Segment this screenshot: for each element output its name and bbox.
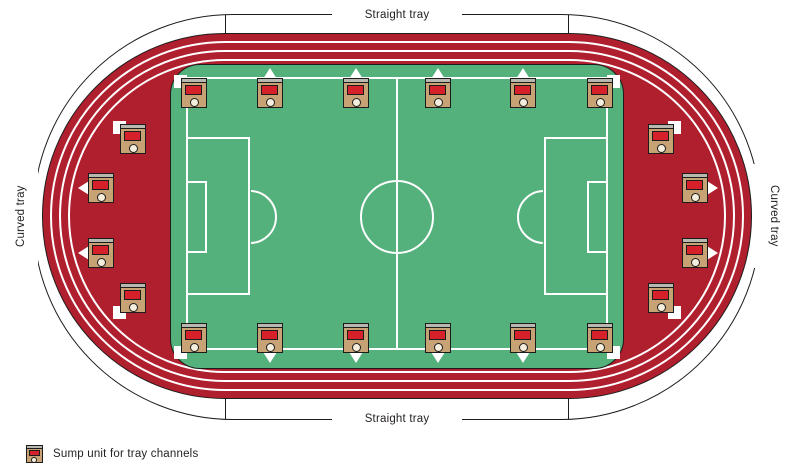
sump-unit bbox=[425, 323, 451, 353]
sump-lid bbox=[588, 79, 612, 83]
sump-red-panel bbox=[185, 330, 202, 340]
sump-body bbox=[257, 323, 283, 353]
label-curved-tray-right: Curved tray bbox=[752, 164, 796, 268]
sump-lid bbox=[511, 79, 535, 83]
sump-outlet bbox=[519, 98, 528, 107]
sump-body bbox=[181, 78, 207, 108]
sump-unit bbox=[510, 323, 536, 353]
sump-unit bbox=[257, 323, 283, 353]
sump-lid bbox=[89, 174, 113, 178]
sump-outlet bbox=[352, 98, 361, 107]
legend: Sump unit for tray channels bbox=[26, 444, 198, 464]
sump-lid bbox=[588, 324, 612, 328]
sump-unit bbox=[88, 173, 114, 203]
sump-red-panel bbox=[185, 85, 202, 95]
sump-red-panel bbox=[347, 330, 364, 340]
sump-red-panel bbox=[652, 131, 669, 141]
sump-outlet bbox=[129, 303, 138, 312]
sump-red-panel bbox=[686, 180, 703, 190]
sump-unit bbox=[88, 238, 114, 268]
sump-unit bbox=[343, 323, 369, 353]
sump-red-panel bbox=[652, 290, 669, 300]
sump-unit bbox=[682, 238, 708, 268]
tray-section-divider bbox=[568, 399, 569, 419]
sump-unit bbox=[648, 124, 674, 154]
sump-body bbox=[343, 78, 369, 108]
sump-red-panel bbox=[124, 131, 141, 141]
sump-unit bbox=[181, 78, 207, 108]
sump-outlet bbox=[129, 144, 138, 153]
sump-body bbox=[510, 323, 536, 353]
sump-body bbox=[425, 78, 451, 108]
sump-unit bbox=[343, 78, 369, 108]
sump-unit bbox=[587, 78, 613, 108]
sump-outlet bbox=[266, 343, 275, 352]
sump-lid bbox=[182, 324, 206, 328]
sump-red-panel bbox=[29, 450, 40, 457]
sump-body bbox=[257, 78, 283, 108]
sump-lid bbox=[511, 324, 535, 328]
sump-body bbox=[120, 124, 146, 154]
sump-lid bbox=[649, 125, 673, 129]
sump-body bbox=[648, 283, 674, 313]
sump-outlet bbox=[97, 193, 106, 202]
sump-body bbox=[587, 323, 613, 353]
sump-lid bbox=[344, 79, 368, 83]
sump-red-panel bbox=[92, 180, 109, 190]
sump-lid bbox=[89, 239, 113, 243]
sump-outlet bbox=[657, 303, 666, 312]
goal-area-right bbox=[587, 181, 608, 253]
sump-red-panel bbox=[347, 85, 364, 95]
sump-lid bbox=[258, 79, 282, 83]
sump-unit bbox=[510, 78, 536, 108]
sump-lid bbox=[258, 324, 282, 328]
sump-unit bbox=[425, 78, 451, 108]
sump-outlet bbox=[596, 98, 605, 107]
tray-section-divider bbox=[225, 15, 226, 34]
sump-red-panel bbox=[429, 330, 446, 340]
sump-red-panel bbox=[591, 85, 608, 95]
sump-unit bbox=[120, 124, 146, 154]
sump-lid bbox=[426, 324, 450, 328]
label-straight-tray-bottom: Straight tray bbox=[332, 408, 462, 429]
sump-body bbox=[88, 173, 114, 203]
sump-outlet bbox=[434, 98, 443, 107]
sump-outlet bbox=[31, 457, 37, 463]
sump-body bbox=[510, 78, 536, 108]
sump-body bbox=[682, 238, 708, 268]
sump-red-panel bbox=[92, 245, 109, 255]
sump-red-panel bbox=[514, 85, 531, 95]
sump-lid bbox=[649, 284, 673, 288]
sump-outlet bbox=[190, 98, 199, 107]
sump-red-panel bbox=[591, 330, 608, 340]
sump-lid bbox=[426, 79, 450, 83]
sump-unit bbox=[120, 283, 146, 313]
sump-unit bbox=[587, 323, 613, 353]
sump-unit bbox=[257, 78, 283, 108]
sump-outlet bbox=[266, 98, 275, 107]
sump-body bbox=[88, 238, 114, 268]
sump-outlet bbox=[190, 343, 199, 352]
sump-lid bbox=[121, 125, 145, 129]
label-curved-tray-left: Curved tray bbox=[4, 164, 38, 268]
sump-lid bbox=[182, 79, 206, 83]
sump-red-panel bbox=[261, 330, 278, 340]
sump-red-panel bbox=[261, 85, 278, 95]
sump-body bbox=[682, 173, 708, 203]
sump-body bbox=[425, 323, 451, 353]
center-circle bbox=[360, 180, 434, 254]
sump-body bbox=[343, 323, 369, 353]
sump-outlet bbox=[657, 144, 666, 153]
sump-body bbox=[587, 78, 613, 108]
sump-outlet bbox=[596, 343, 605, 352]
sump-lid bbox=[683, 239, 707, 243]
sump-lid bbox=[121, 284, 145, 288]
sump-outlet bbox=[434, 343, 443, 352]
sump-red-panel bbox=[686, 245, 703, 255]
sump-red-panel bbox=[429, 85, 446, 95]
sump-unit-legend-icon bbox=[26, 445, 43, 463]
sump-body bbox=[181, 323, 207, 353]
sump-red-panel bbox=[514, 330, 531, 340]
goal-area-left bbox=[186, 181, 207, 253]
sump-unit bbox=[648, 283, 674, 313]
tray-section-divider bbox=[568, 15, 569, 34]
sump-unit bbox=[682, 173, 708, 203]
sump-lid bbox=[344, 324, 368, 328]
sump-outlet bbox=[519, 343, 528, 352]
tray-section-divider bbox=[225, 399, 226, 419]
diagram-canvas: Straight tray Straight tray Curved tray … bbox=[0, 0, 798, 467]
sump-outlet bbox=[691, 258, 700, 267]
sump-outlet bbox=[691, 193, 700, 202]
label-straight-tray-top: Straight tray bbox=[332, 4, 462, 25]
legend-label: Sump unit for tray channels bbox=[53, 448, 198, 460]
sump-body bbox=[120, 283, 146, 313]
sump-red-panel bbox=[124, 290, 141, 300]
sump-outlet bbox=[352, 343, 361, 352]
sump-lid bbox=[683, 174, 707, 178]
sump-body bbox=[648, 124, 674, 154]
sump-outlet bbox=[97, 258, 106, 267]
sump-unit bbox=[181, 323, 207, 353]
